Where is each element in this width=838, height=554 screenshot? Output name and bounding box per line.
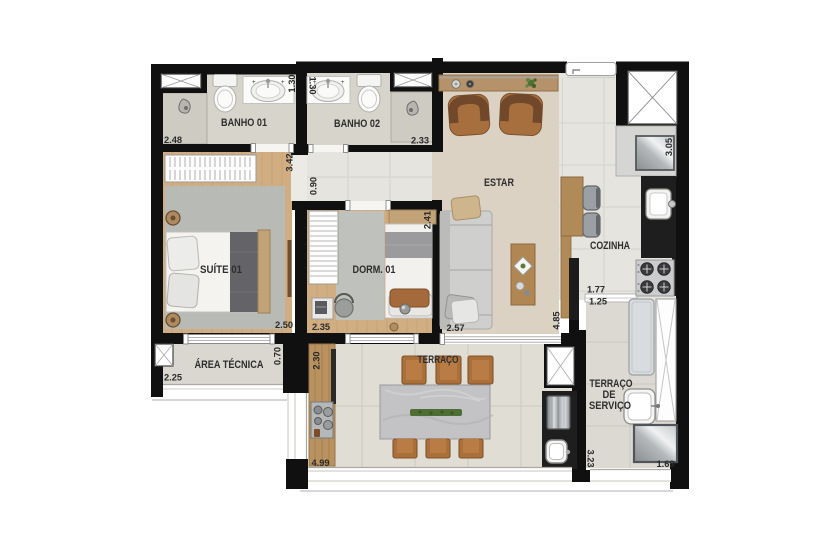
svg-text:2.41: 2.41 bbox=[423, 211, 433, 229]
svg-text:2.33: 2.33 bbox=[411, 136, 429, 146]
svg-text:ESTAR: ESTAR bbox=[484, 177, 514, 189]
svg-text:2.25: 2.25 bbox=[164, 373, 182, 383]
svg-text:BANHO 02: BANHO 02 bbox=[334, 118, 380, 130]
svg-text:1.25: 1.25 bbox=[589, 297, 607, 307]
svg-text:+: + bbox=[281, 80, 285, 86]
svg-text:4.85: 4.85 bbox=[552, 311, 562, 329]
svg-text:3.05: 3.05 bbox=[664, 138, 674, 156]
svg-text:+: + bbox=[252, 80, 256, 86]
svg-text:4.99: 4.99 bbox=[311, 458, 329, 468]
svg-text:1.30: 1.30 bbox=[308, 76, 318, 94]
svg-text:DORM. 01: DORM. 01 bbox=[353, 264, 396, 276]
svg-text:COZINHA: COZINHA bbox=[590, 240, 630, 252]
svg-text:1.77: 1.77 bbox=[587, 285, 605, 295]
svg-text:3.42: 3.42 bbox=[285, 153, 295, 171]
svg-text:SUÍTE 01: SUÍTE 01 bbox=[200, 263, 242, 276]
svg-text:2.48: 2.48 bbox=[164, 135, 182, 145]
svg-text:2.35: 2.35 bbox=[312, 322, 330, 332]
svg-text:2.50: 2.50 bbox=[275, 320, 293, 330]
svg-text:SERVIÇO: SERVIÇO bbox=[589, 400, 631, 412]
svg-text:2.57: 2.57 bbox=[446, 323, 464, 333]
svg-text:1.69: 1.69 bbox=[656, 459, 674, 469]
svg-text:TERRAÇO: TERRAÇO bbox=[418, 354, 459, 366]
svg-text:3.23: 3.23 bbox=[586, 449, 596, 467]
svg-text:0.70: 0.70 bbox=[273, 347, 283, 365]
svg-text:0.90: 0.90 bbox=[309, 177, 319, 195]
svg-text:1.30: 1.30 bbox=[287, 74, 297, 92]
svg-text:+: + bbox=[341, 80, 345, 86]
svg-text:BANHO 01: BANHO 01 bbox=[221, 117, 267, 129]
svg-text:2.30: 2.30 bbox=[312, 351, 322, 369]
svg-text:ÁREA TÉCNICA: ÁREA TÉCNICA bbox=[195, 358, 264, 371]
